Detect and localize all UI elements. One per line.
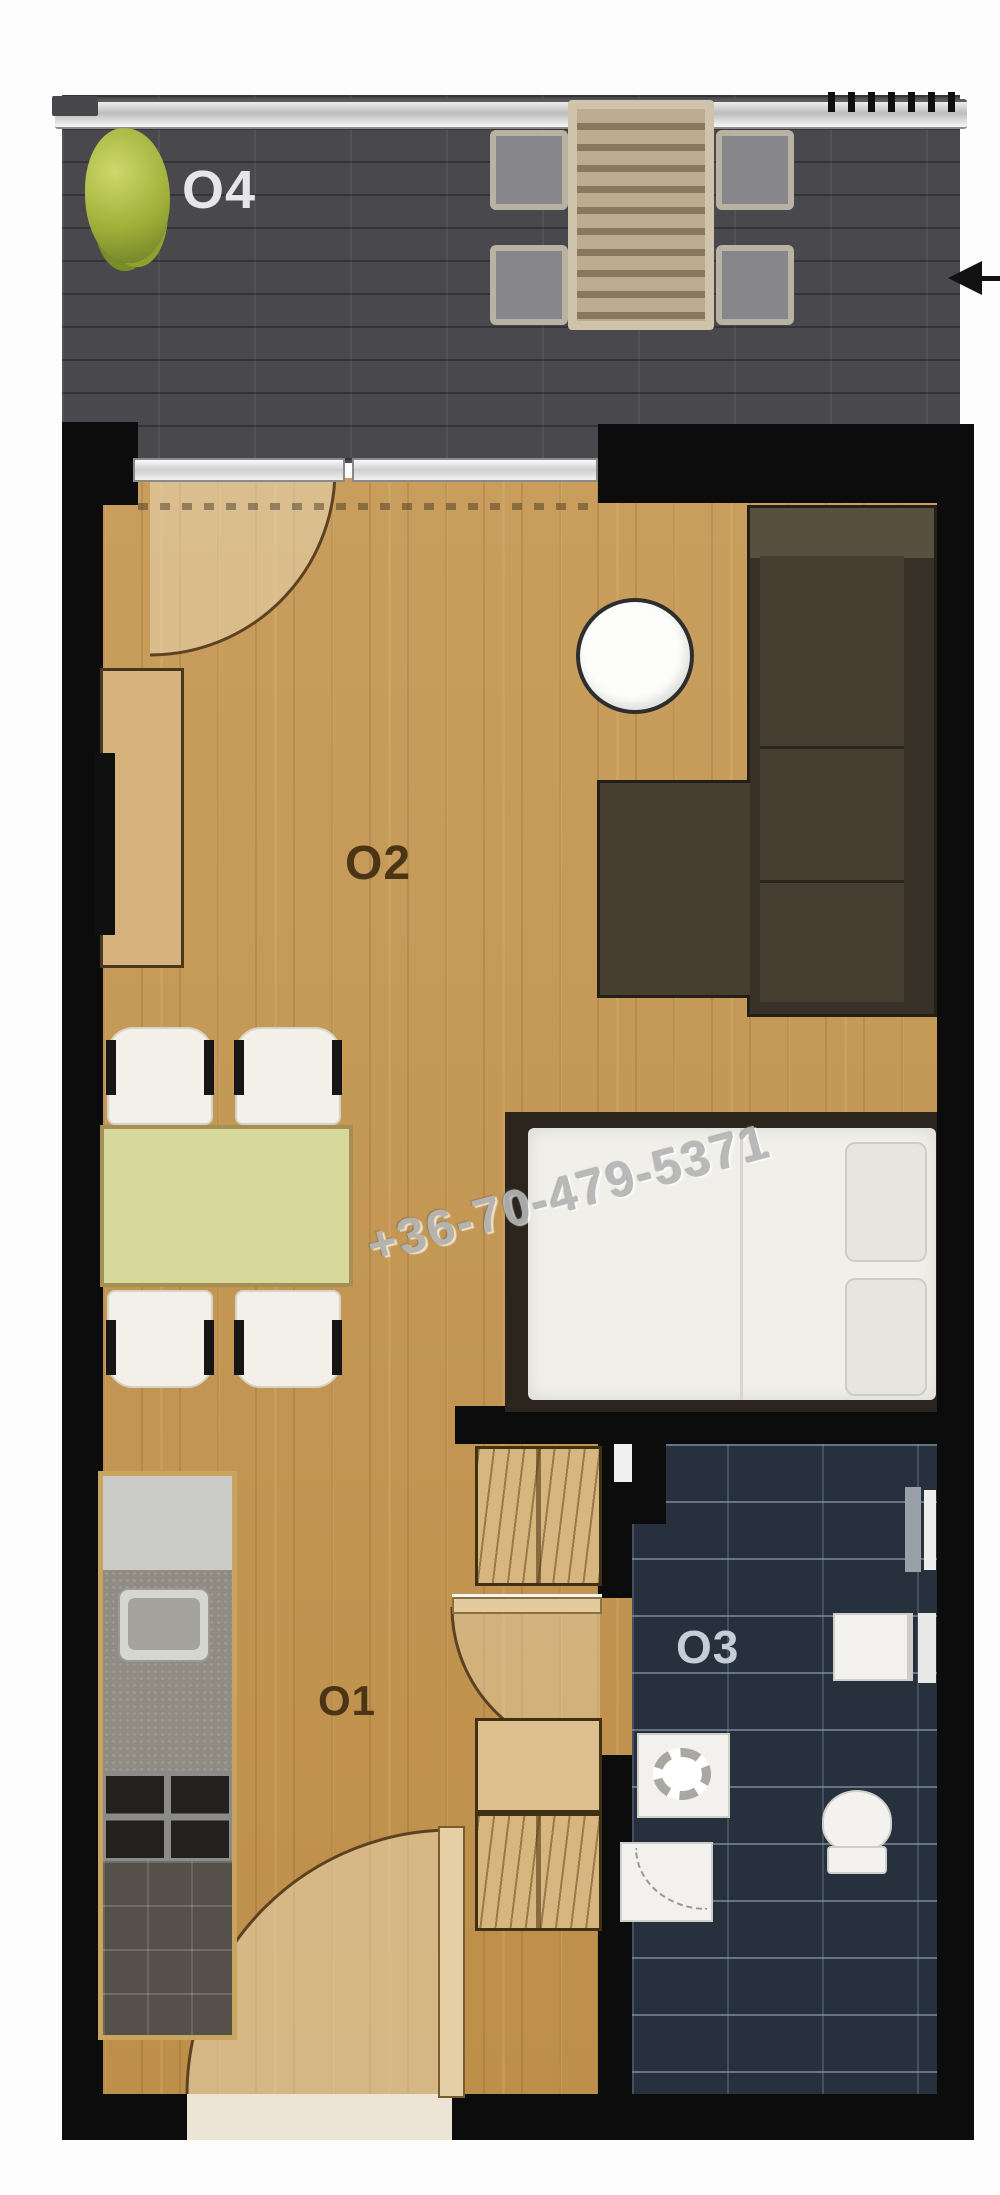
dining-chair [235,1290,341,1388]
room-label-o3: O3 [676,1624,739,1670]
kitchen-sink-basin [128,1598,200,1650]
window-sill [352,458,598,482]
balcony-chair [490,245,568,325]
bathroom-sink [637,1733,730,1818]
tv [95,753,115,935]
room-label-o2: O2 [345,840,411,888]
threshold-hatch [138,503,598,510]
railing-left-cap [52,96,98,116]
balcony-chair [490,130,568,210]
wall-bathroom-left-upper [598,1406,632,1598]
sofa-seam [760,880,904,883]
wall-right [937,424,974,2140]
radiator [905,1487,921,1572]
kitchen-counter-strip [98,1471,237,2040]
cabinet-unit [475,1718,602,1813]
wall-top-left-pillar [62,422,138,505]
wall-top-right [598,424,972,503]
kitchen-sink [118,1588,210,1662]
entrance-threshold [187,2094,452,2140]
floor-plan: O4 O2 +36- [0,0,1000,2195]
bathroom-wall-stub [632,1444,666,1524]
railing-hatch-marks [828,92,960,112]
entrance-arrow-icon [948,261,982,295]
wardrobe-unit [475,1446,602,1586]
wardrobe-unit [475,1813,602,1931]
balcony-chair [716,245,794,325]
dining-chair [235,1027,341,1125]
bed-pillow [845,1278,927,1396]
wall-bathroom-left-lower [598,1755,632,2140]
sofa-main [747,505,937,1017]
dining-chair [107,1290,213,1388]
wall-left [62,422,103,2140]
dining-chair [107,1027,213,1125]
room-label-o1: O1 [318,1680,376,1722]
shower-tray [620,1842,713,1922]
sofa-back-cushion [750,508,934,558]
kitchen-lower-cabinets [103,1861,232,2035]
entrance-arrow-line [980,276,1000,281]
wall-bottom-right [452,2094,974,2140]
sofa-seam [760,746,904,749]
wall-bottom-left [62,2094,187,2140]
round-side-table [576,598,694,714]
entrance-door-leaf [438,1826,465,2098]
shower-curtain-arc [635,1848,707,1910]
bed-pillow [845,1142,927,1262]
washing-machine-side [918,1613,936,1683]
room-label-o4: O4 [182,163,256,217]
stove [103,1773,232,1861]
sofa-seat [760,556,904,1002]
radiator-panel [924,1490,936,1570]
sofa-chaise [597,780,750,998]
bathroom-door-leaf [452,1597,602,1614]
balcony-table [568,100,714,330]
toilet-tank [827,1846,887,1874]
balcony-chair [716,130,794,210]
kitchen-counter-top [103,1476,232,1570]
sink-basin-ring [653,1748,711,1800]
toilet-bowl [822,1790,892,1852]
washing-machine [833,1613,913,1681]
dining-table [100,1125,353,1287]
bathroom-door-jamb [614,1444,632,1482]
balcony-door-sill [133,458,345,482]
